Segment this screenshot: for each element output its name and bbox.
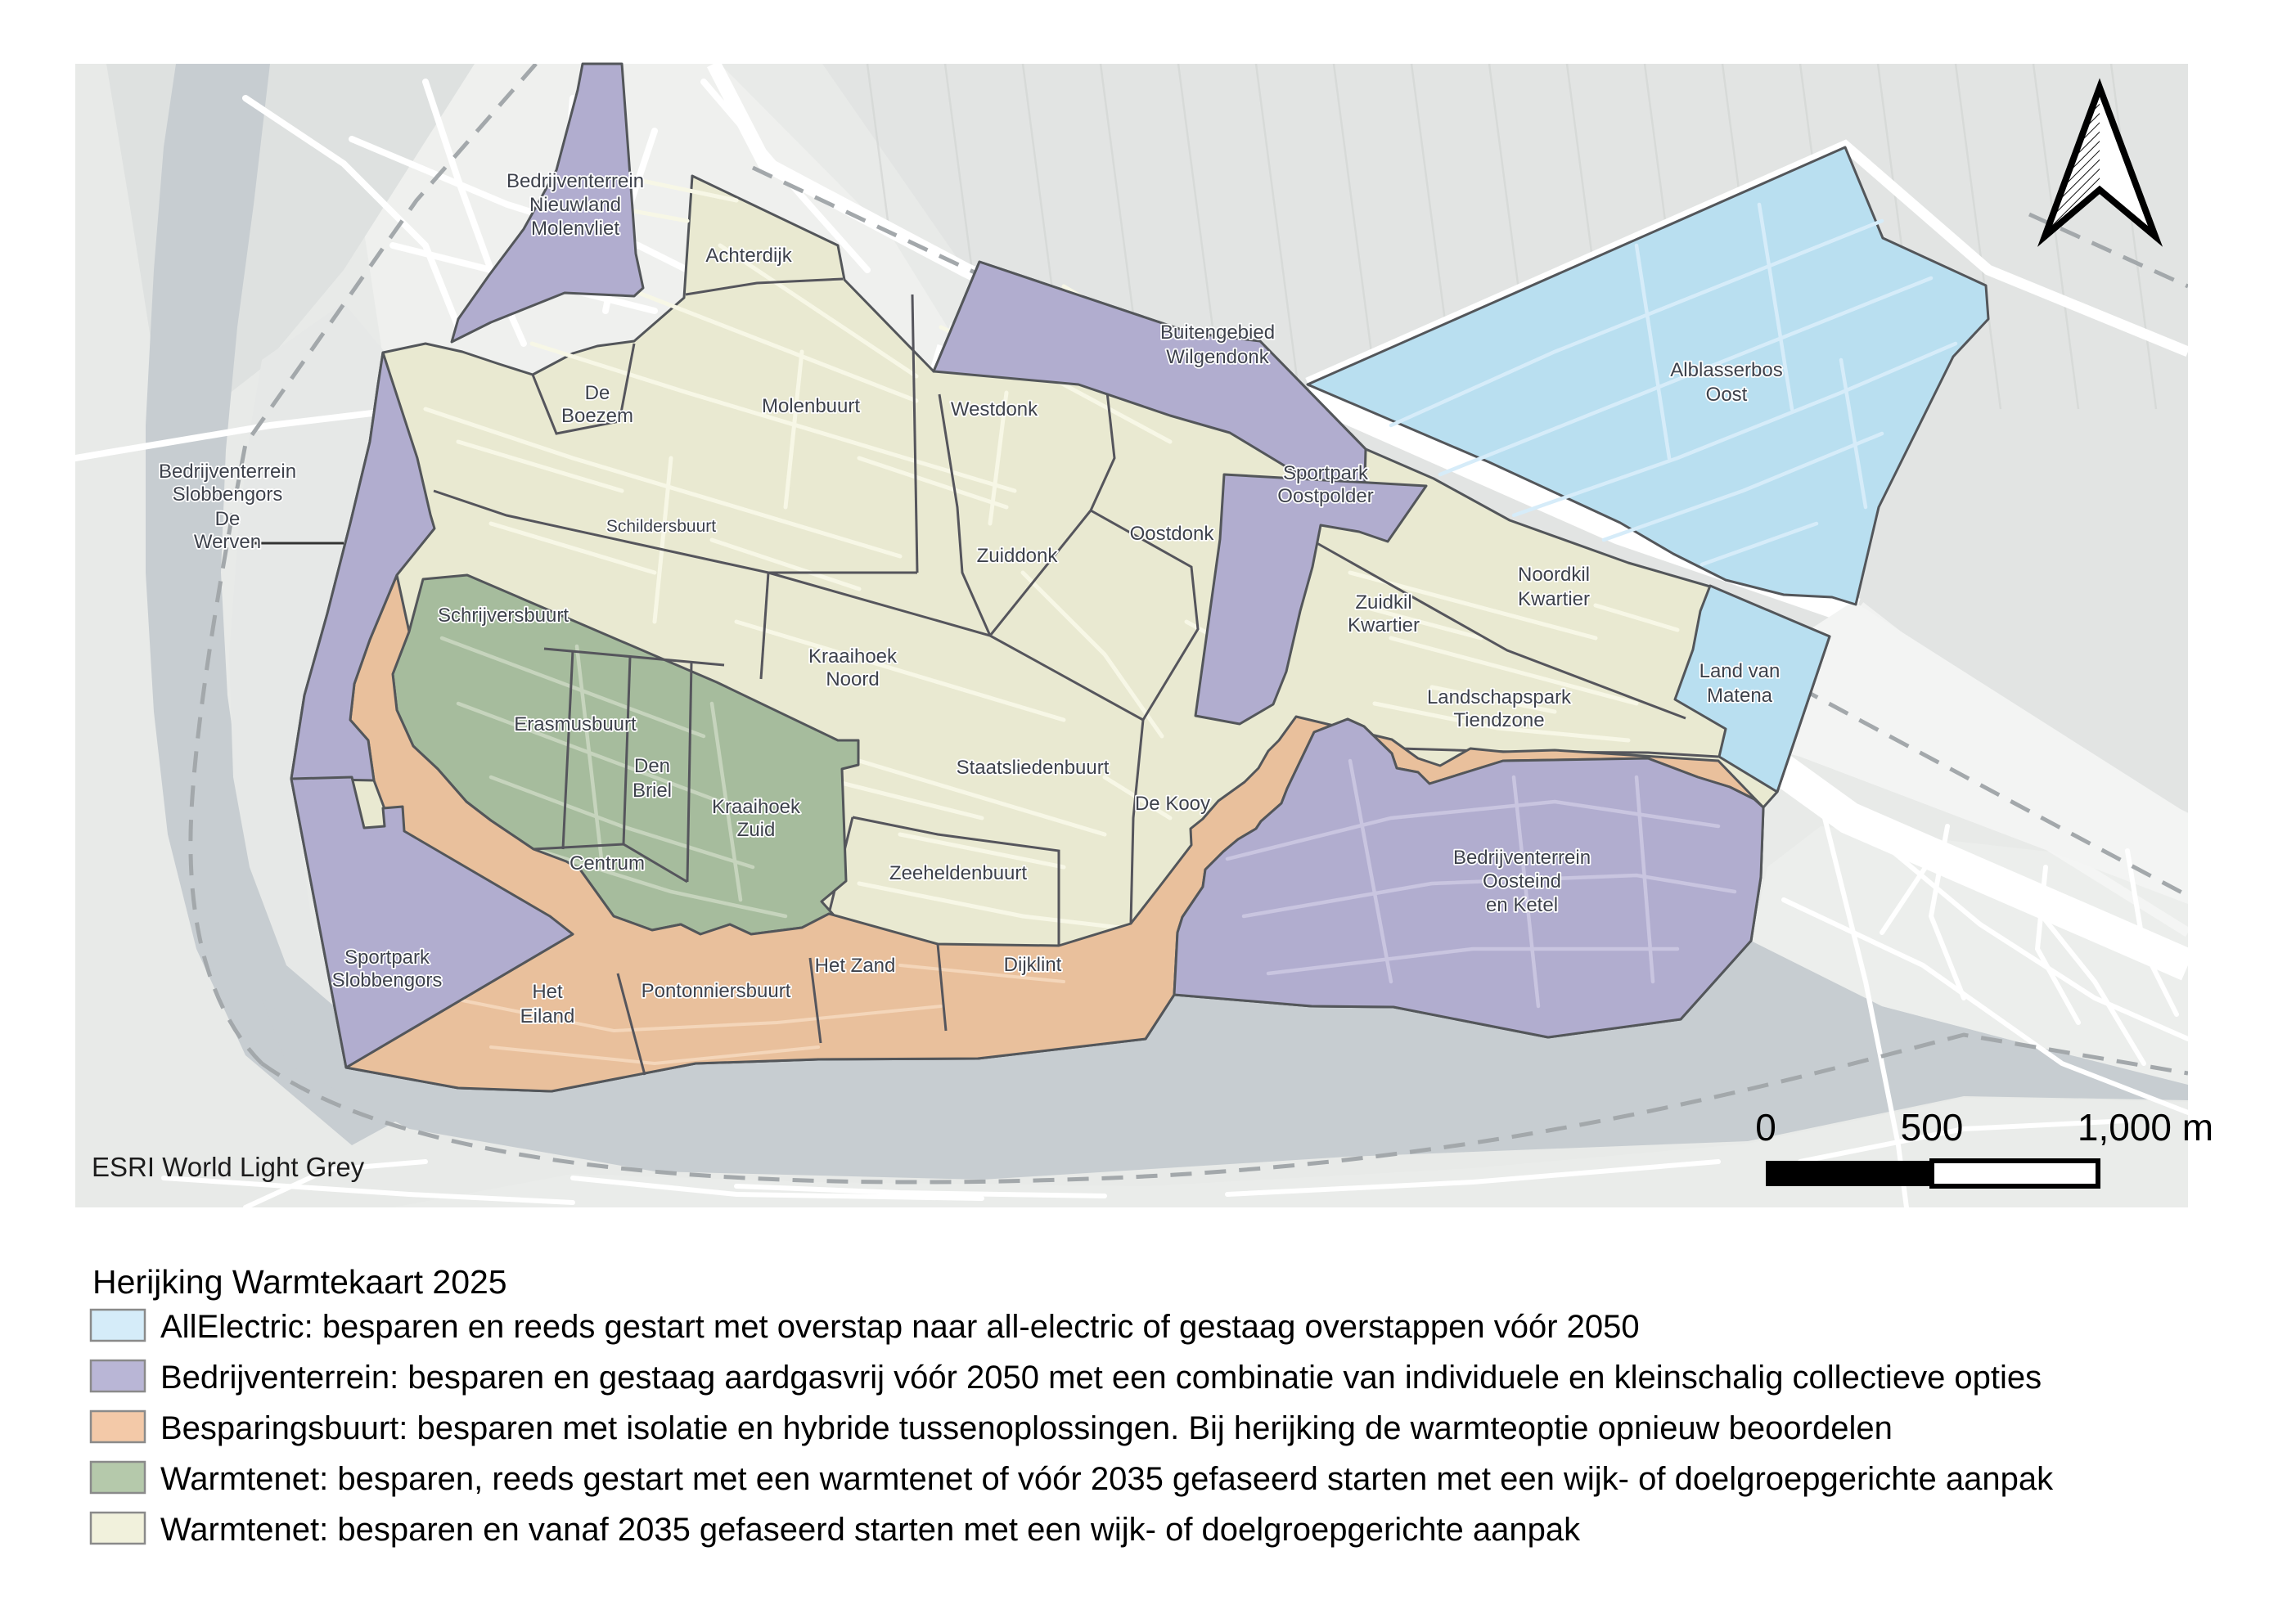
svg-text:Het Zand: Het Zand: [815, 955, 896, 977]
svg-text:Zeeheldenbuurt: Zeeheldenbuurt: [889, 862, 1027, 884]
svg-text:SportparkSlobbengors: SportparkSlobbengors: [332, 946, 443, 991]
svg-text:Warmtenet: besparen, reeds ges: Warmtenet: besparen, reeds gestart met e…: [160, 1461, 2054, 1497]
svg-text:Pontonniersbuurt: Pontonniersbuurt: [642, 980, 791, 1002]
svg-text:Westdonk: Westdonk: [951, 398, 1038, 420]
svg-text:Molenbuurt: Molenbuurt: [762, 395, 860, 417]
svg-text:Zuiddonk: Zuiddonk: [977, 545, 1059, 567]
svg-text:Staatsliedenbuurt: Staatsliedenbuurt: [957, 757, 1110, 779]
svg-text:Schrijversbuurt: Schrijversbuurt: [438, 605, 569, 627]
svg-text:1,000 m: 1,000 m: [2078, 1106, 2213, 1149]
svg-text:500: 500: [1901, 1106, 1964, 1149]
svg-text:0: 0: [1755, 1106, 1776, 1149]
svg-text:Schildersbuurt: Schildersbuurt: [606, 517, 716, 536]
svg-text:ESRI World Light Grey: ESRI World Light Grey: [92, 1152, 365, 1182]
svg-text:AllElectric: besparen en reeds: AllElectric: besparen en reeds gestart m…: [160, 1309, 1640, 1345]
svg-text:Besparingsbuurt: besparen met: Besparingsbuurt: besparen met isolatie e…: [160, 1410, 1893, 1446]
svg-text:Oostdonk: Oostdonk: [1130, 523, 1215, 545]
svg-text:SportparkOostpolder: SportparkOostpolder: [1277, 462, 1373, 507]
svg-text:Dijklint: Dijklint: [1004, 954, 1062, 976]
svg-text:Herijking Warmtekaart 2025: Herijking Warmtekaart 2025: [92, 1263, 507, 1301]
svg-text:ZuidkilKwartier: ZuidkilKwartier: [1348, 591, 1420, 636]
svg-text:De Kooy: De Kooy: [1135, 793, 1210, 815]
svg-text:Achterdijk: Achterdijk: [705, 245, 792, 267]
svg-text:Bedrijventerrein: besparen en: Bedrijventerrein: besparen en gestaag aa…: [160, 1360, 2042, 1396]
svg-text:Warmtenet: besparen en vanaf 2: Warmtenet: besparen en vanaf 2035 gefase…: [160, 1512, 1581, 1548]
svg-text:Centrum: Centrum: [569, 852, 645, 874]
svg-text:Erasmusbuurt: Erasmusbuurt: [514, 713, 637, 735]
